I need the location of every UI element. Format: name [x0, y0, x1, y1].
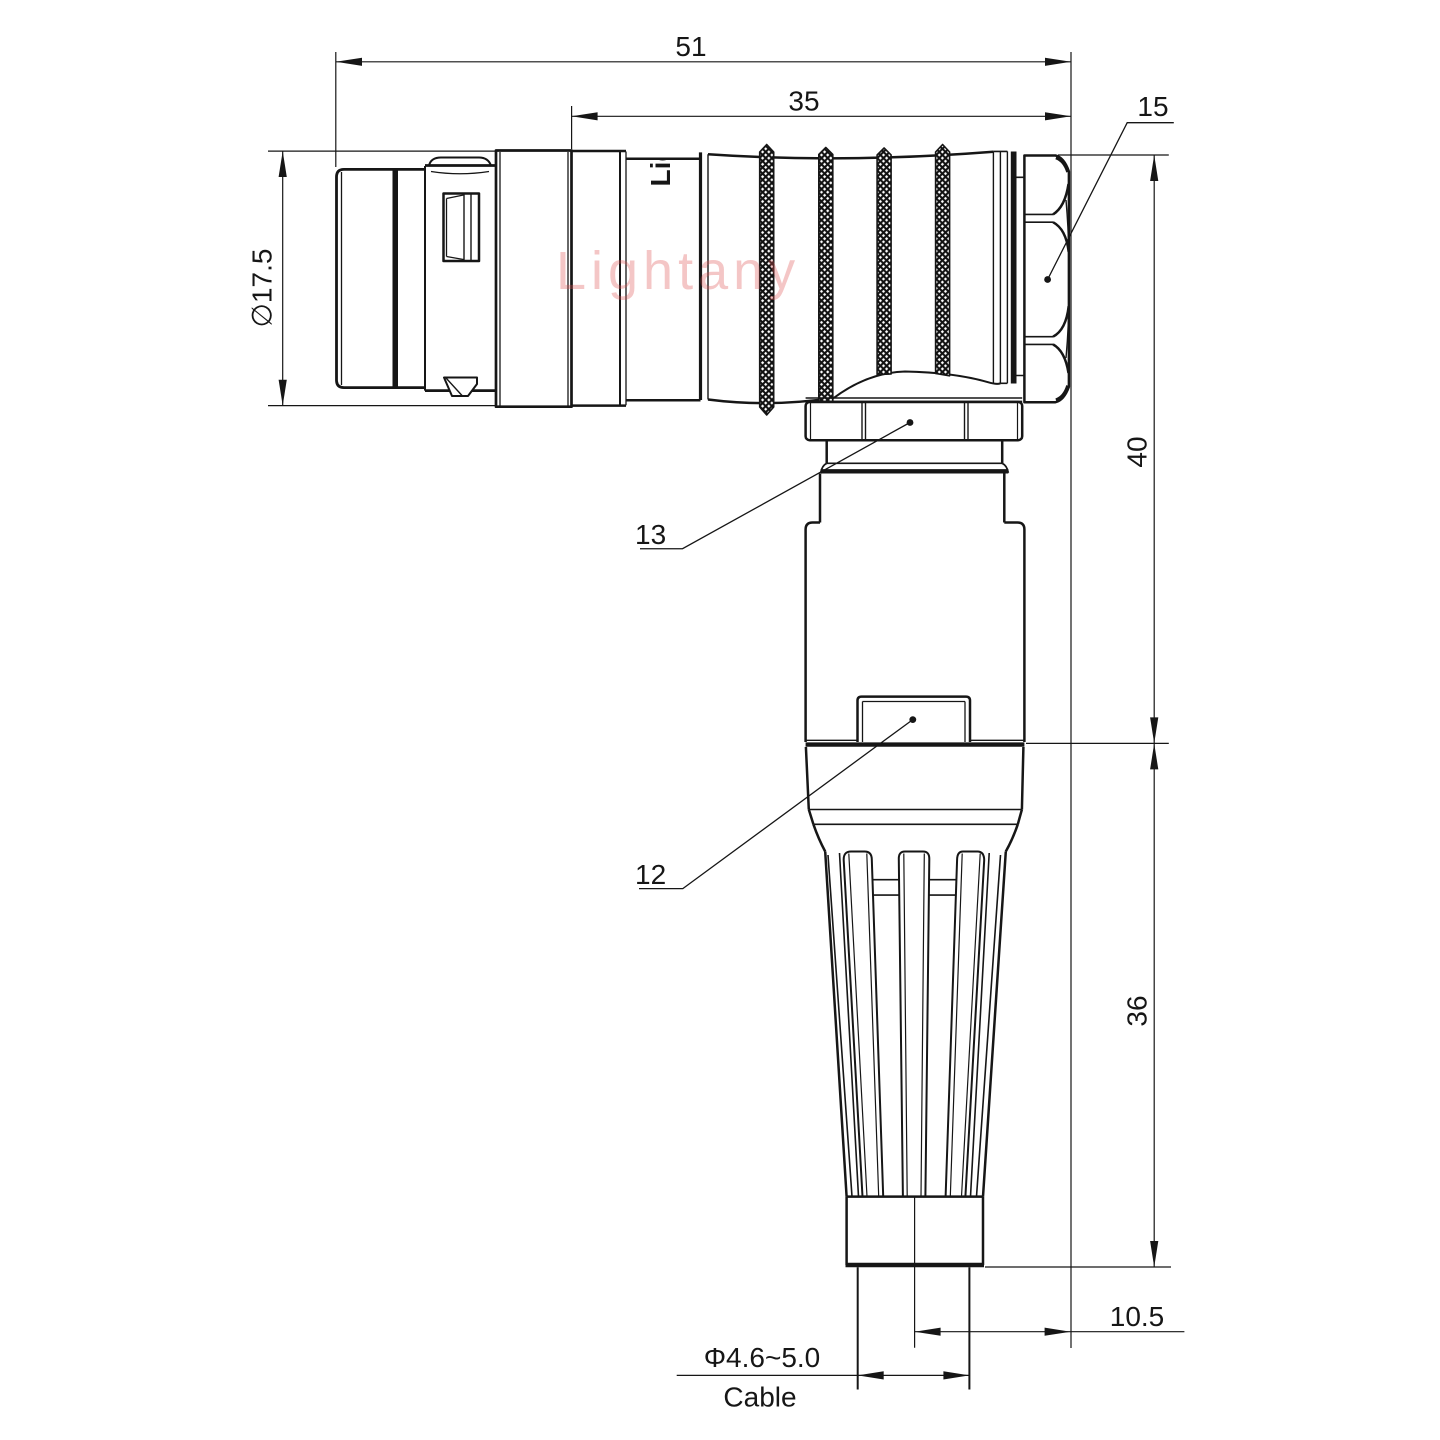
svg-text:13: 13: [635, 519, 666, 550]
svg-text:51: 51: [675, 31, 706, 62]
svg-text:35: 35: [788, 86, 819, 117]
svg-text:40: 40: [1121, 436, 1152, 467]
svg-text:15: 15: [1137, 91, 1168, 122]
svg-text:12: 12: [635, 859, 666, 890]
svg-text:∅17.5: ∅17.5: [246, 249, 277, 328]
svg-text:36: 36: [1121, 995, 1152, 1026]
svg-text:Cable: Cable: [723, 1382, 796, 1413]
svg-text:Lightany: Lightany: [556, 241, 800, 301]
svg-text:10.5: 10.5: [1110, 1301, 1165, 1332]
svg-text:Φ4.6~5.0: Φ4.6~5.0: [704, 1342, 821, 1373]
